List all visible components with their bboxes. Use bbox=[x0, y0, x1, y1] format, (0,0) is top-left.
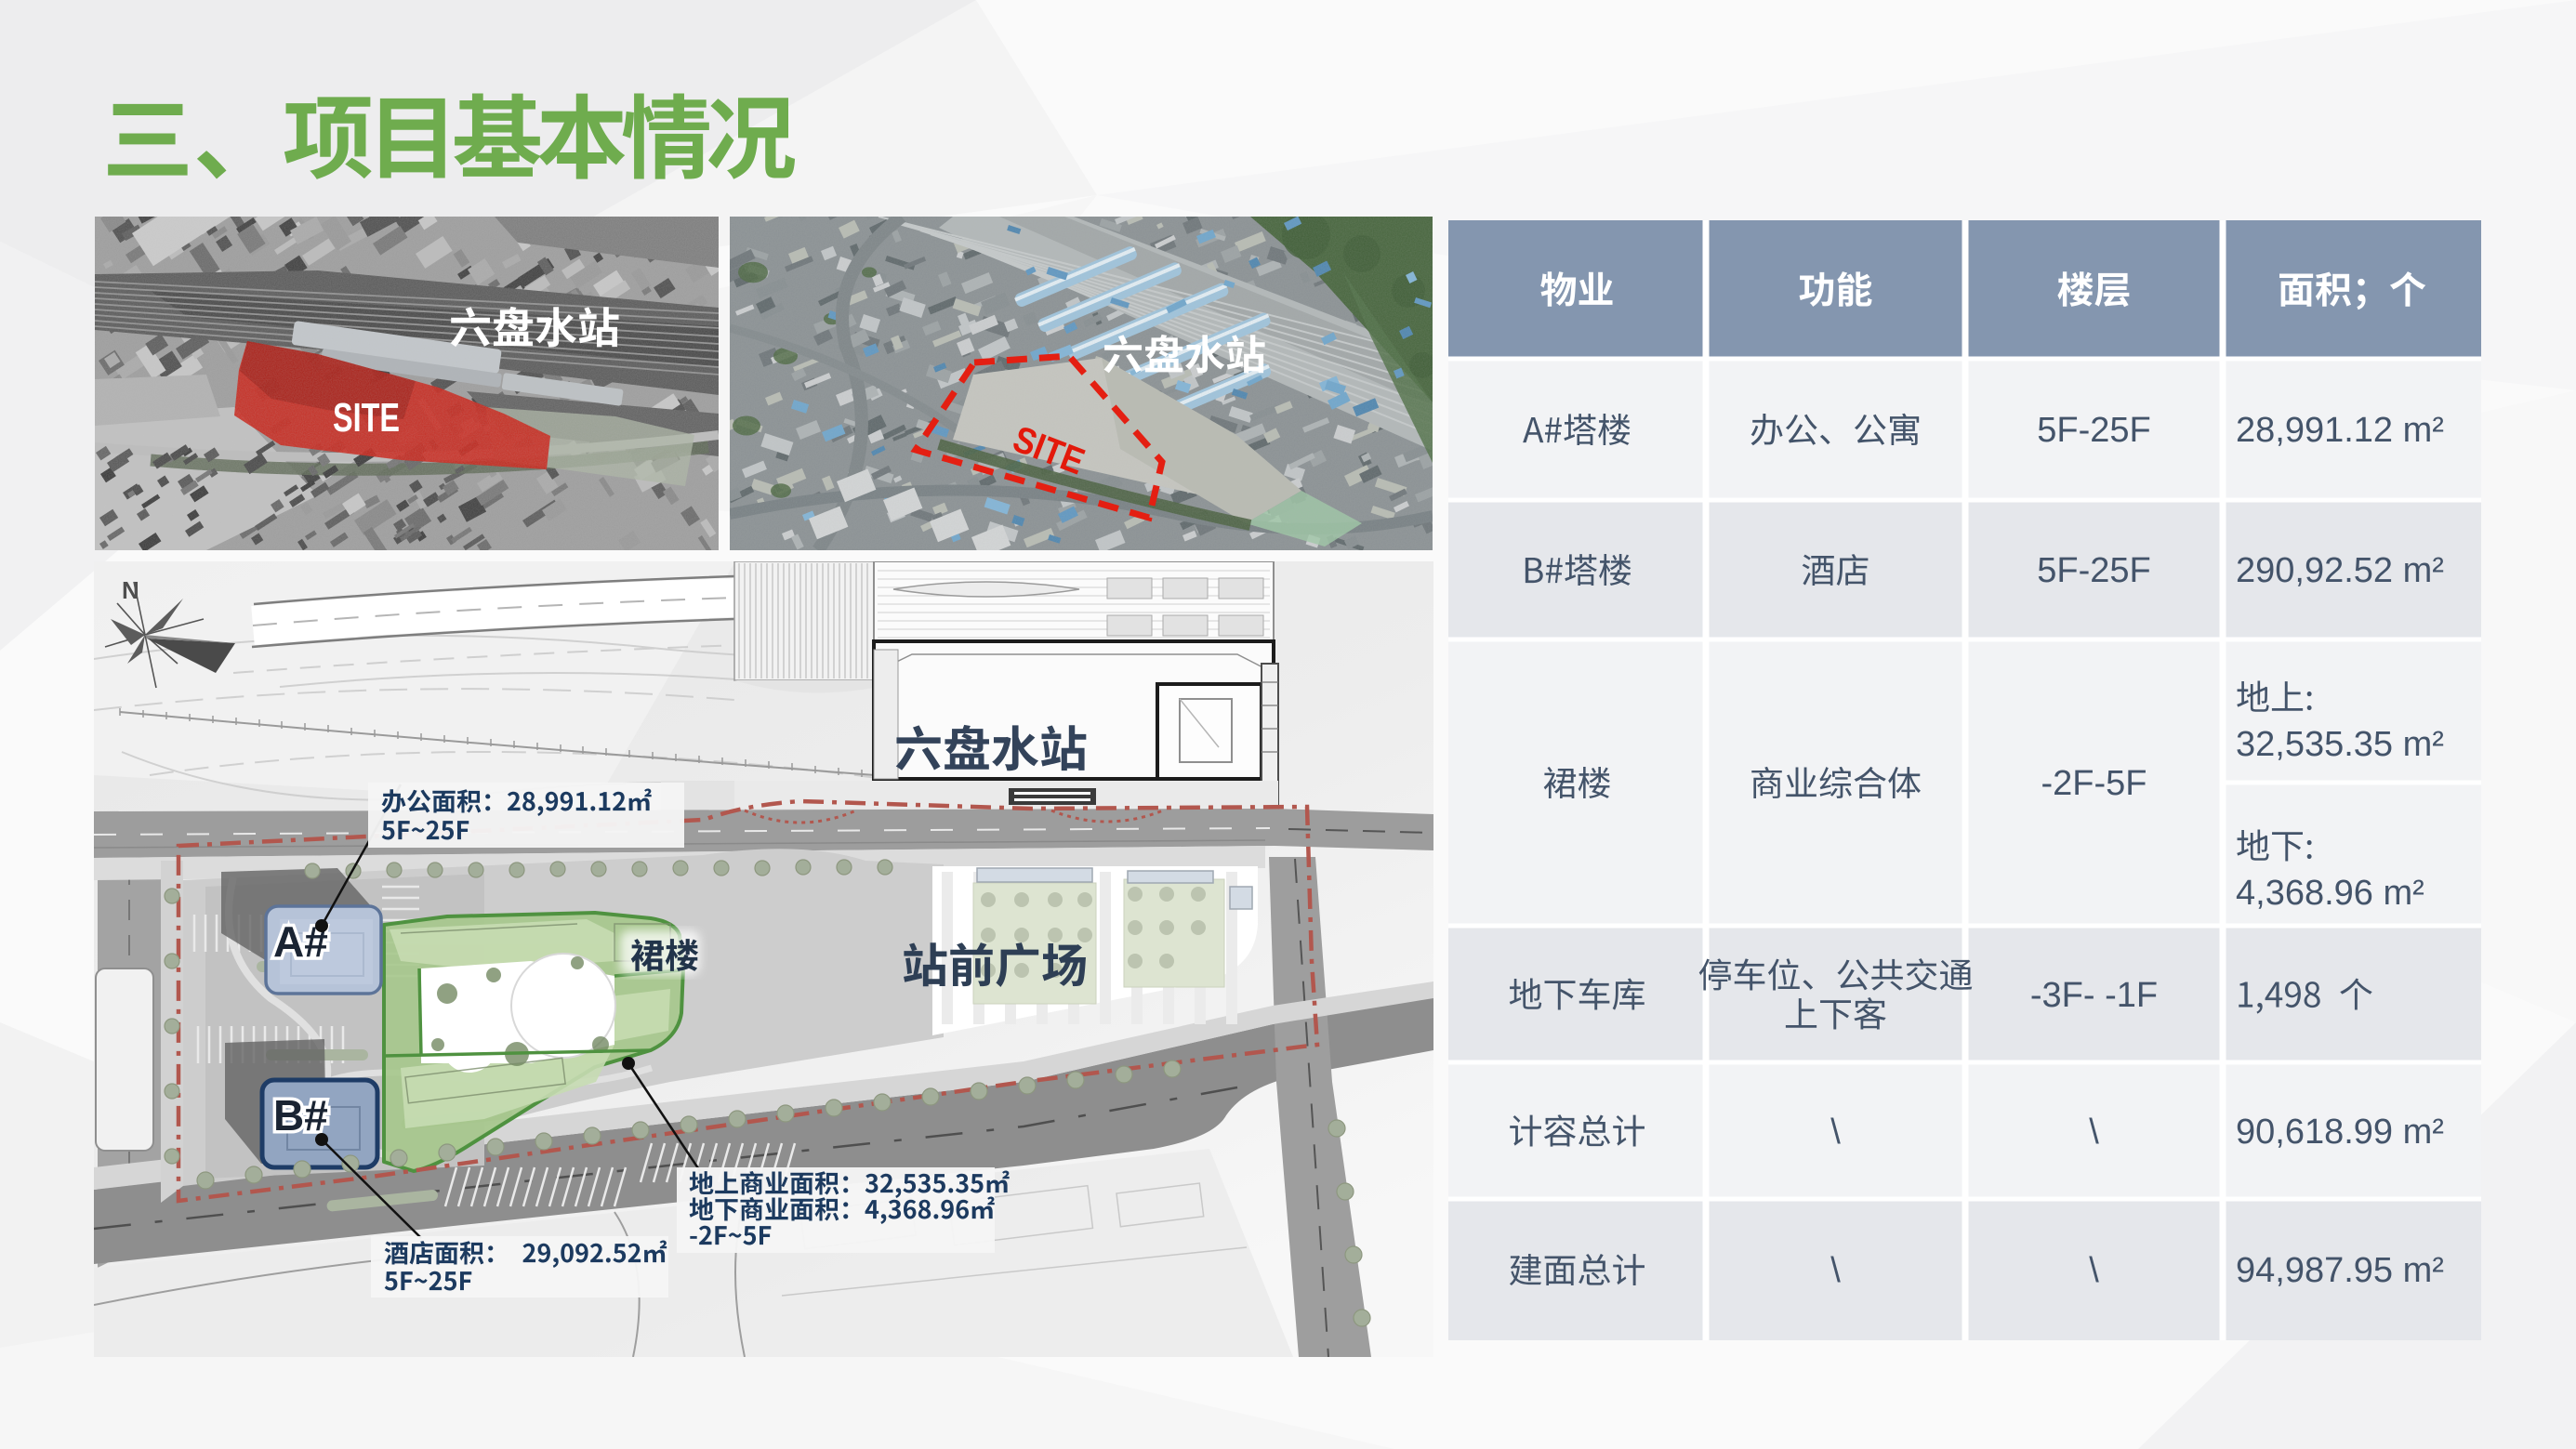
svg-text:N: N bbox=[122, 576, 139, 604]
svg-text:94,987.95 m²: 94,987.95 m² bbox=[2236, 1251, 2444, 1290]
svg-text:5F-25F: 5F-25F bbox=[2037, 411, 2150, 450]
svg-text:\: \ bbox=[1830, 1113, 1841, 1152]
svg-text:32,535.35 m²: 32,535.35 m² bbox=[2236, 725, 2444, 764]
svg-text:-3F- -1F: -3F- -1F bbox=[2030, 976, 2158, 1015]
svg-text:-2F-5F: -2F-5F bbox=[2041, 764, 2147, 803]
svg-text:4,368.96 m²: 4,368.96 m² bbox=[2236, 874, 2424, 913]
svg-text:90,618.99 m²: 90,618.99 m² bbox=[2236, 1113, 2444, 1152]
svg-text:SITE: SITE bbox=[333, 395, 400, 441]
svg-text:\: \ bbox=[2089, 1251, 2099, 1290]
svg-text:\: \ bbox=[2089, 1113, 2099, 1152]
svg-text:\: \ bbox=[1830, 1251, 1841, 1290]
svg-text:5F-25F: 5F-25F bbox=[2037, 551, 2150, 590]
svg-text:28,991.12 m²: 28,991.12 m² bbox=[2236, 411, 2444, 450]
svg-text:290,92.52 m²: 290,92.52 m² bbox=[2236, 551, 2444, 590]
svg-text:B#: B# bbox=[273, 1091, 328, 1139]
